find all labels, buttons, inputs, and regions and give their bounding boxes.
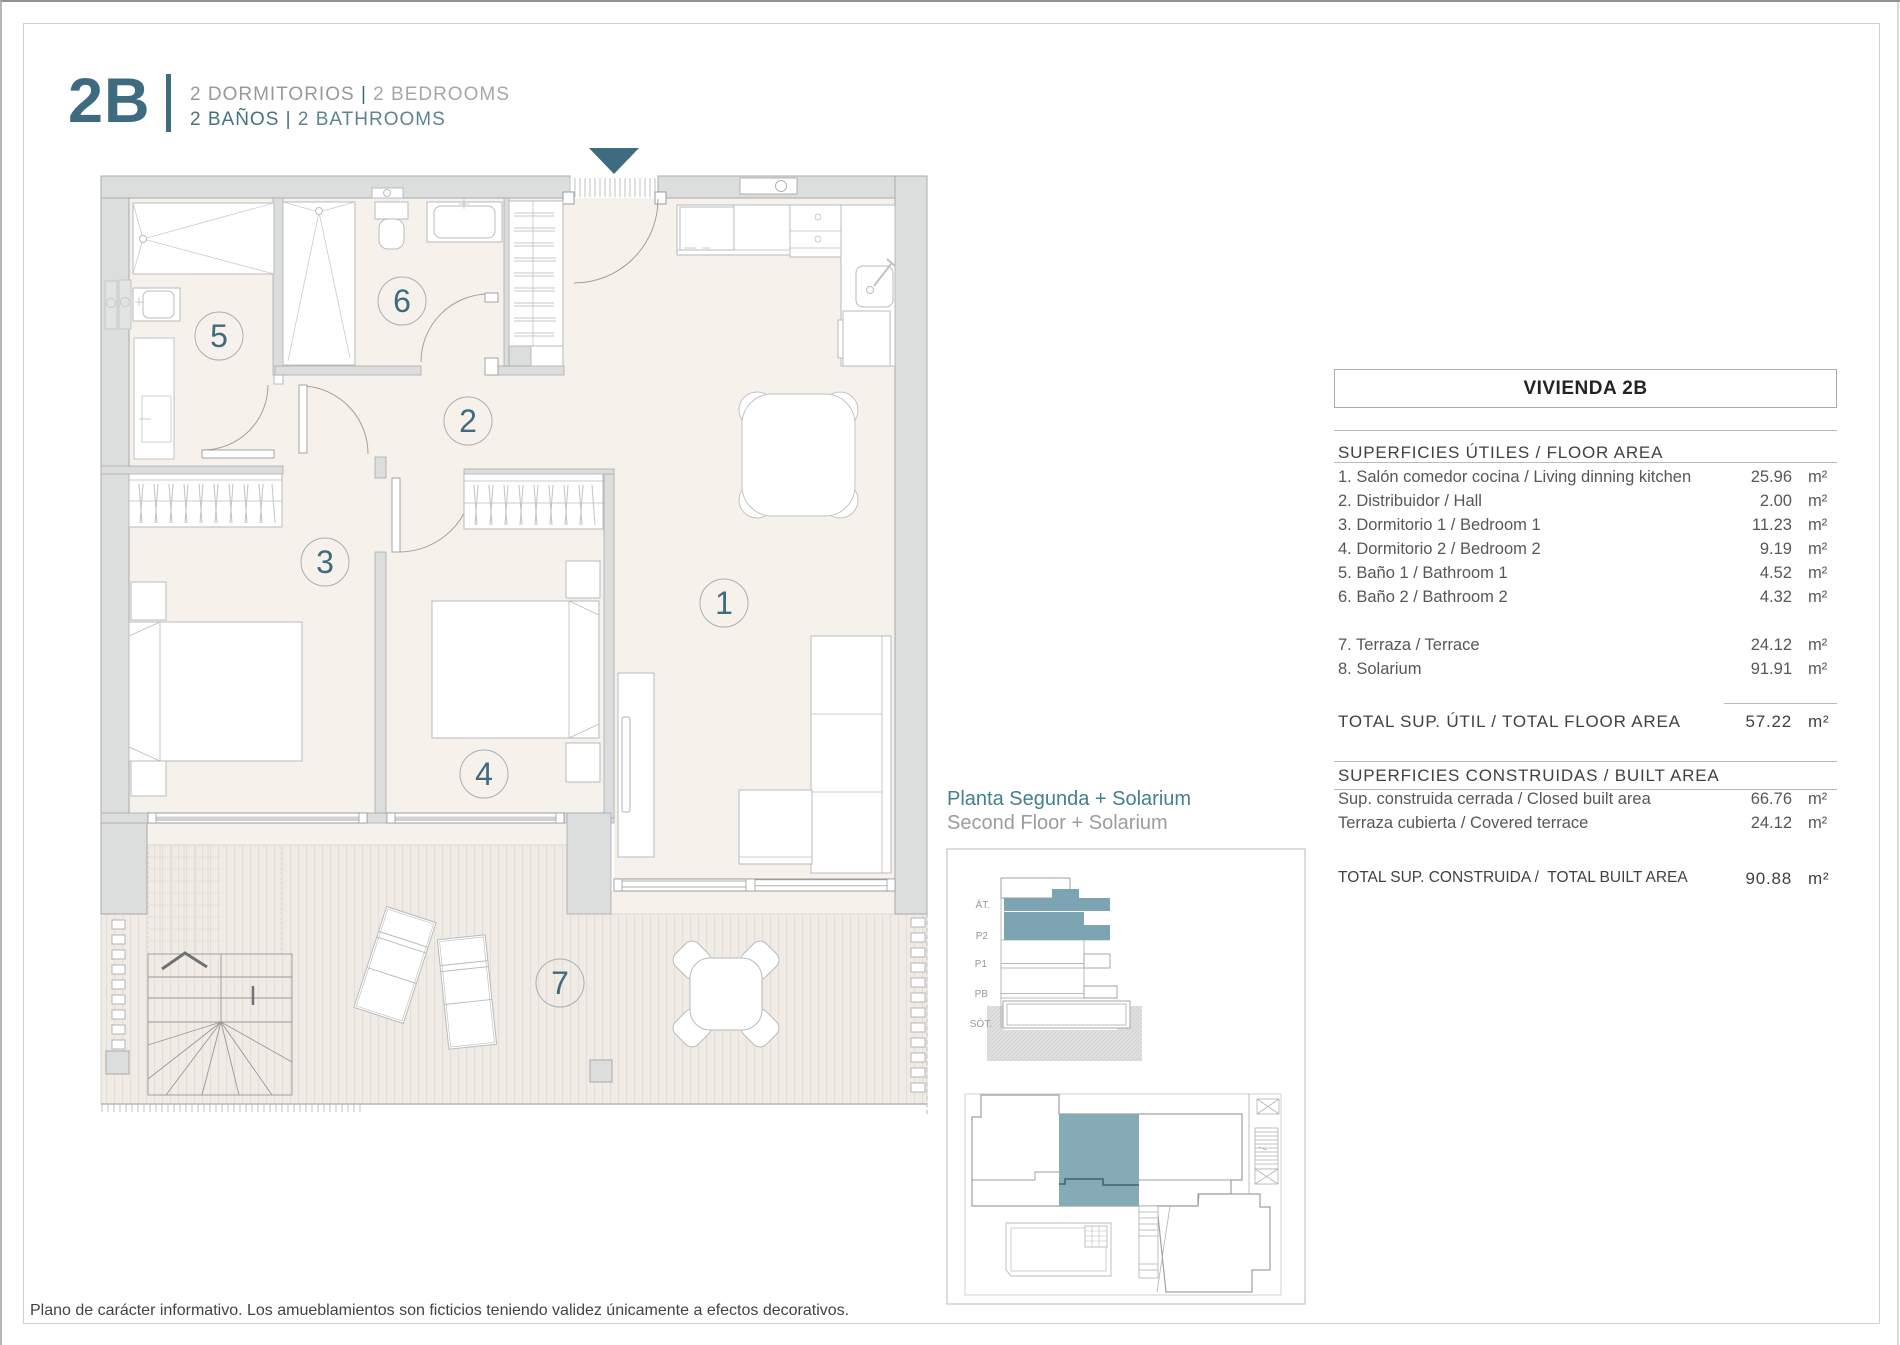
svg-text:SÓT.: SÓT. [970,1017,992,1030]
svg-text:7: 7 [551,965,569,1001]
svg-text:ÁT.: ÁT. [976,898,990,911]
svg-text:4: 4 [475,756,493,792]
svg-text:1: 1 [715,585,733,621]
svg-text:3: 3 [316,544,334,580]
svg-text:P2: P2 [976,931,989,942]
svg-text:2: 2 [459,403,477,439]
svg-text:6: 6 [393,283,411,319]
svg-text:P1: P1 [975,959,988,970]
svg-text:PB: PB [975,989,989,1000]
svg-text:5: 5 [210,318,228,354]
